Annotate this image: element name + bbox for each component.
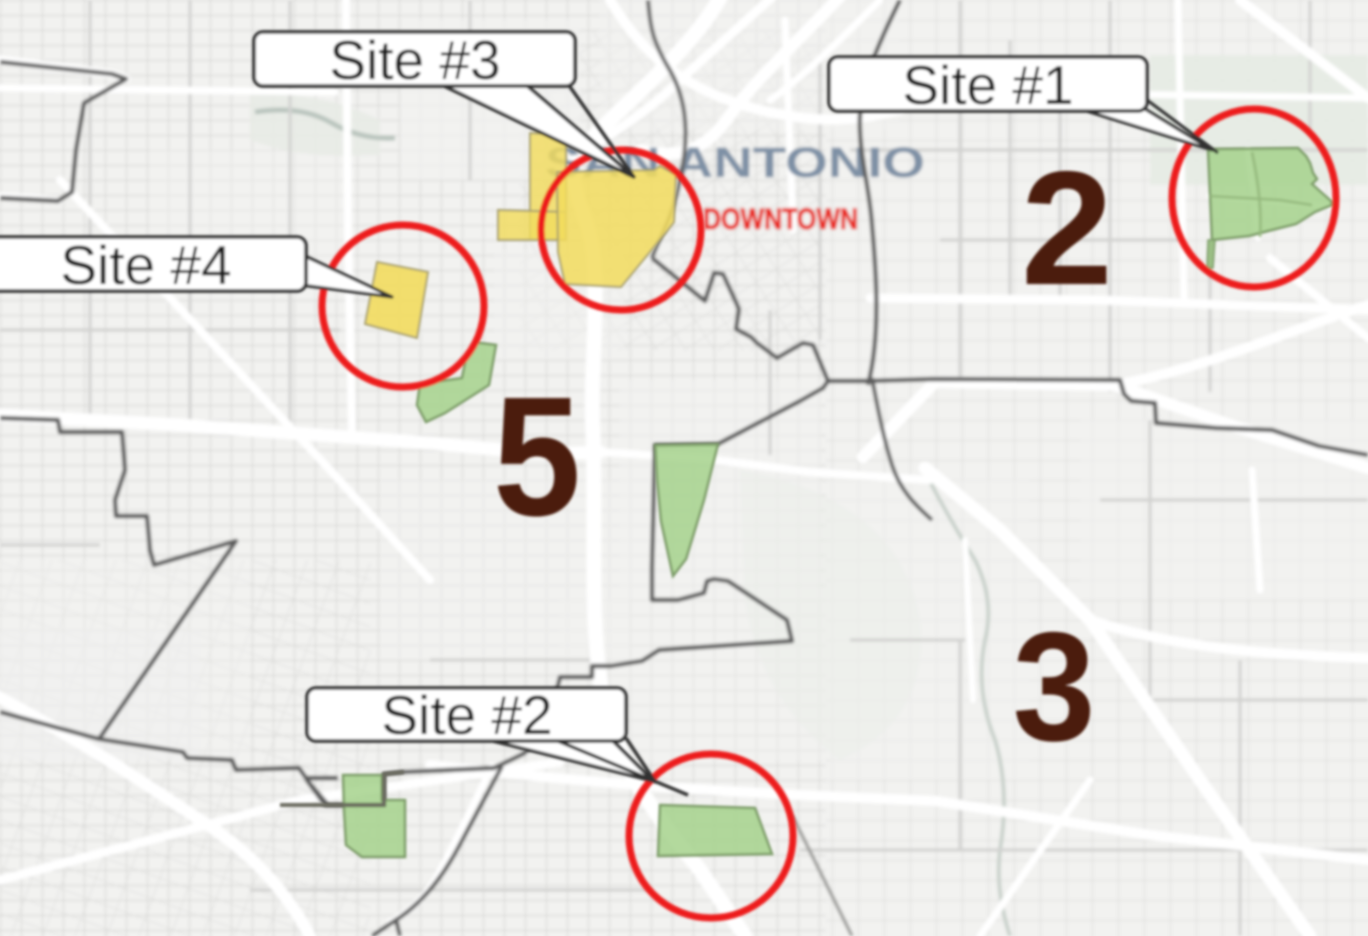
svg-text:DOWNTOWN: DOWNTOWN bbox=[703, 203, 858, 236]
svg-text:Site #1: Site #1 bbox=[902, 54, 1073, 116]
svg-text:Site #2: Site #2 bbox=[381, 684, 552, 746]
svg-text:Site #3: Site #3 bbox=[329, 29, 500, 91]
svg-text:2: 2 bbox=[1021, 137, 1113, 318]
svg-text:5: 5 bbox=[493, 361, 581, 552]
svg-text:3: 3 bbox=[1013, 600, 1096, 773]
svg-text:Site #4: Site #4 bbox=[60, 234, 231, 296]
